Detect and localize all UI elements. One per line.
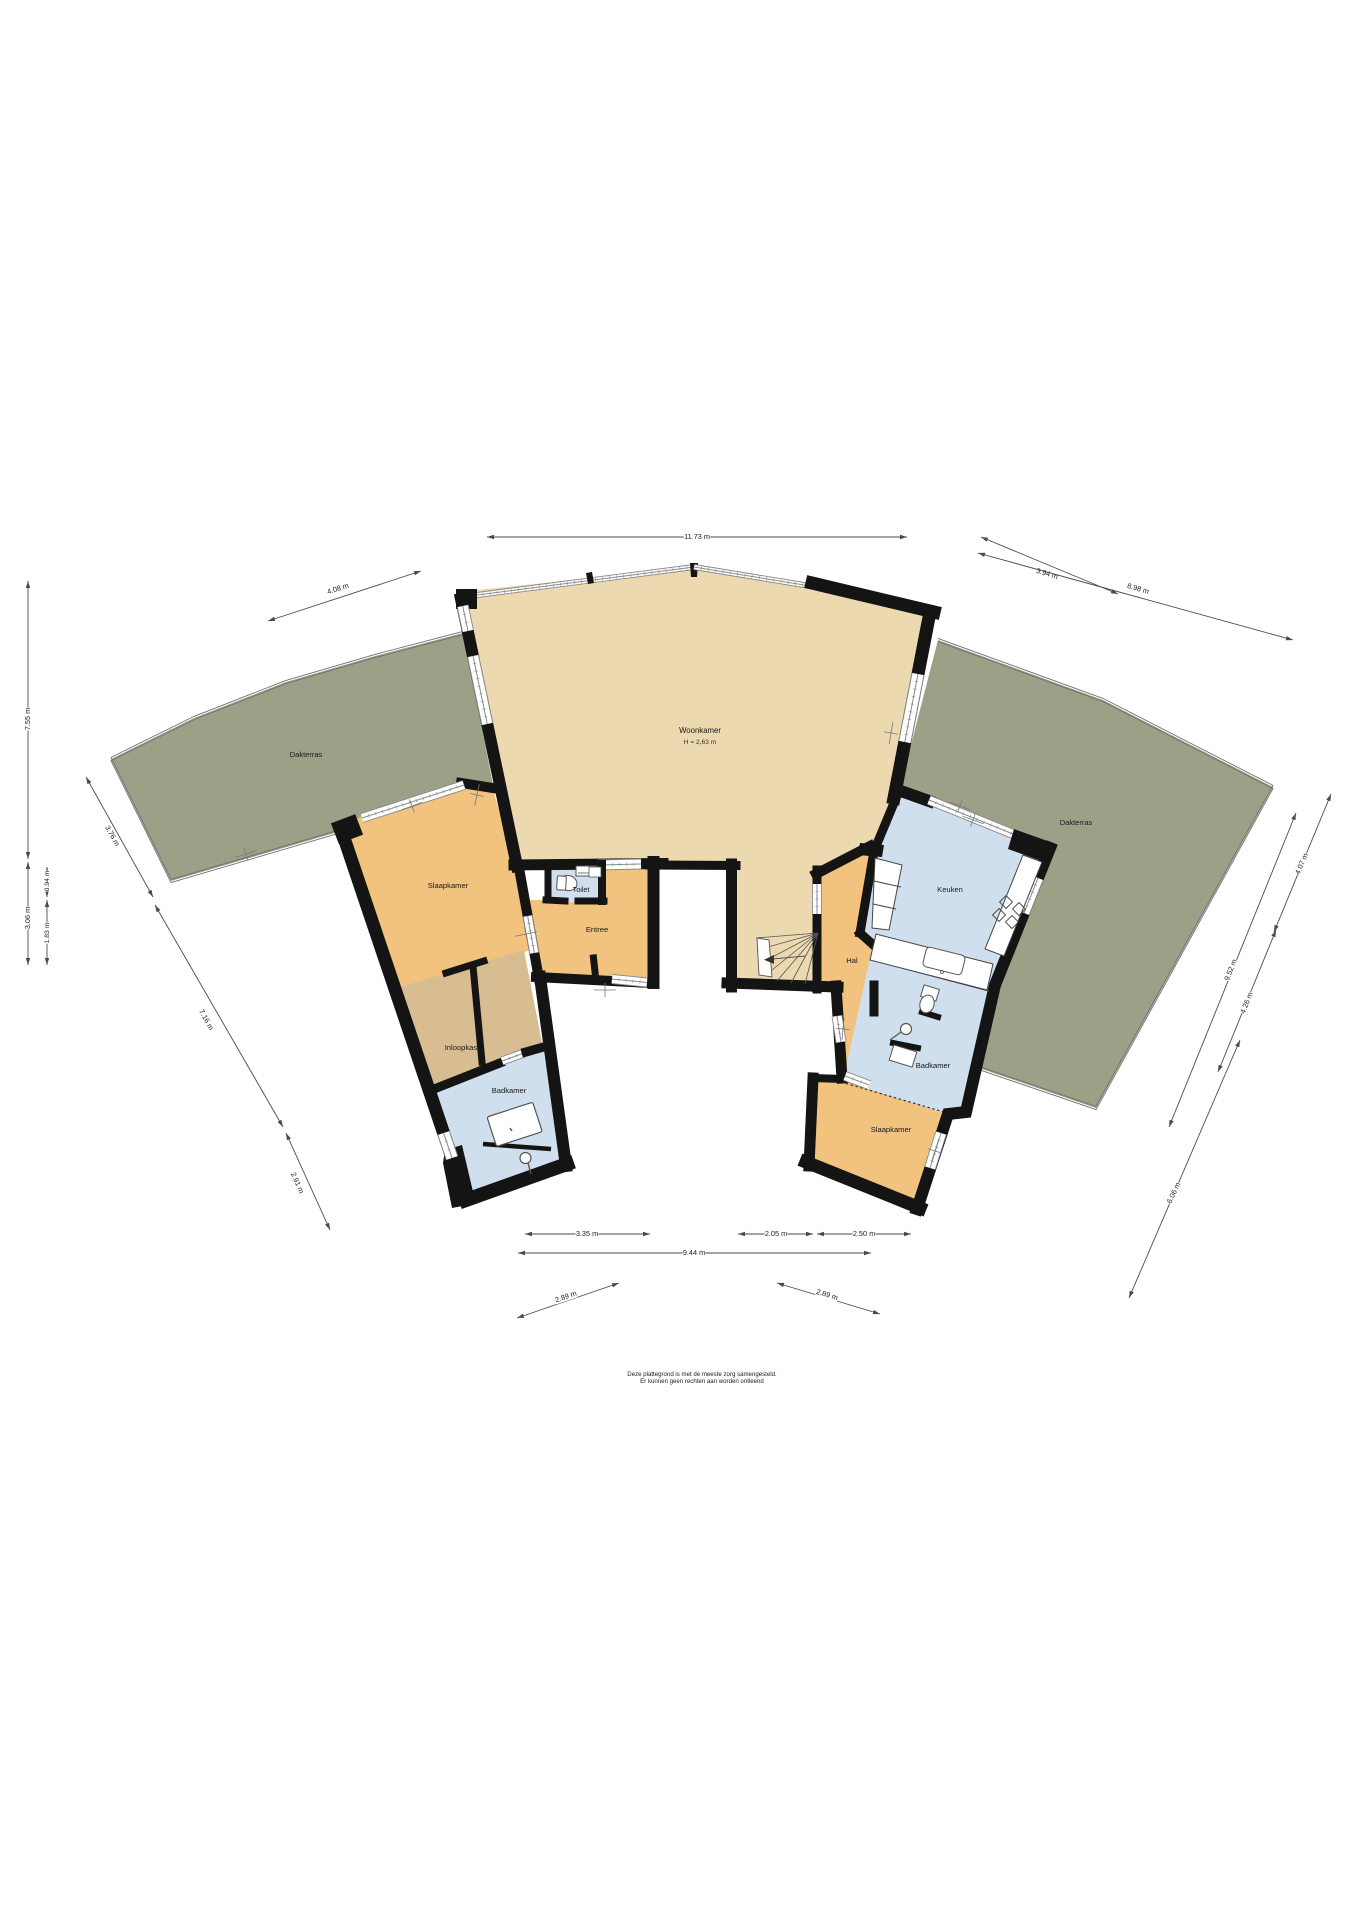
svg-text:Keuken: Keuken bbox=[937, 885, 963, 894]
svg-text:Woonkamer: Woonkamer bbox=[679, 726, 721, 735]
svg-text:9.44 m: 9.44 m bbox=[683, 1248, 705, 1257]
svg-text:Deze plattegrond is met de mee: Deze plattegrond is met de meeste zorg s… bbox=[627, 1371, 777, 1378]
svg-text:7.55 m: 7.55 m bbox=[23, 708, 32, 730]
svg-text:Slaapkamer: Slaapkamer bbox=[871, 1125, 912, 1134]
svg-text:Dakterras: Dakterras bbox=[290, 750, 323, 759]
svg-text:2.05 m: 2.05 m bbox=[765, 1229, 787, 1238]
svg-text:Dakterras: Dakterras bbox=[1060, 818, 1093, 827]
svg-text:Slaapkamer: Slaapkamer bbox=[428, 881, 469, 890]
svg-text:Badkamer: Badkamer bbox=[916, 1061, 951, 1070]
svg-text:11.73 m: 11.73 m bbox=[684, 532, 710, 541]
svg-text:1.83 m: 1.83 m bbox=[44, 922, 51, 943]
svg-text:0.94 m: 0.94 m bbox=[44, 870, 51, 891]
svg-text:3.06 m: 3.06 m bbox=[23, 907, 32, 929]
svg-text:Badkamer: Badkamer bbox=[492, 1086, 527, 1095]
svg-text:Er kunnen geen rechten aan wor: Er kunnen geen rechten aan worden ontlee… bbox=[640, 1378, 764, 1385]
svg-text:2.50 m: 2.50 m bbox=[853, 1229, 875, 1238]
svg-text:Entree: Entree bbox=[586, 925, 608, 934]
svg-text:Toilet: Toilet bbox=[573, 885, 590, 894]
svg-text:H = 2,63 m: H = 2,63 m bbox=[684, 739, 717, 746]
svg-text:Hal: Hal bbox=[846, 956, 858, 965]
svg-text:Inloopkast: Inloopkast bbox=[445, 1043, 481, 1052]
svg-text:3.35 m: 3.35 m bbox=[576, 1229, 598, 1238]
